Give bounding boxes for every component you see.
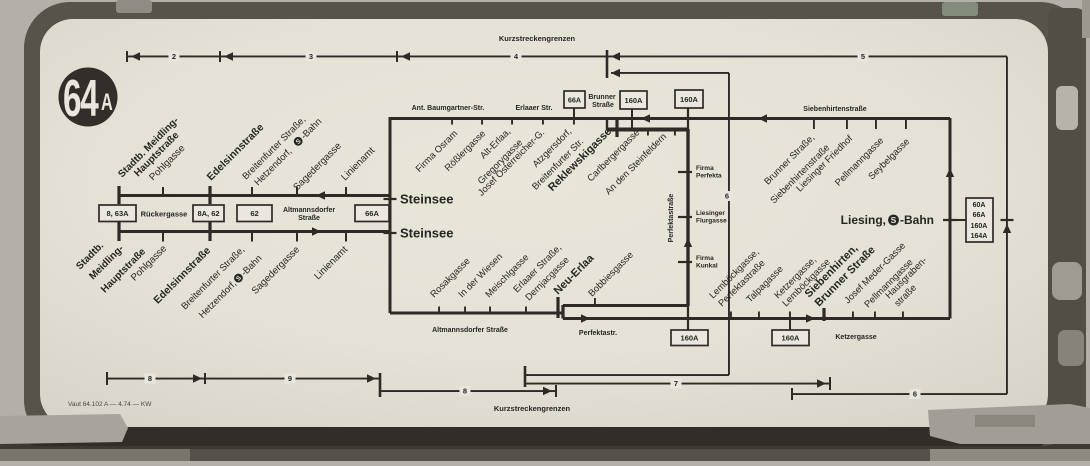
svg-text:Altmannsdorfer Straße: Altmannsdorfer Straße	[432, 327, 508, 334]
svg-text:Kunkal: Kunkal	[696, 263, 718, 270]
svg-text:6: 6	[913, 390, 917, 399]
svg-text:8, 63A: 8, 63A	[106, 209, 129, 218]
svg-text:164A: 164A	[971, 233, 988, 240]
svg-text:66A: 66A	[365, 209, 379, 218]
svg-text:Kurzstreckengrenzen: Kurzstreckengrenzen	[494, 404, 571, 413]
svg-text:160A: 160A	[625, 96, 644, 105]
svg-text:Siebenhirtenstraße: Siebenhirtenstraße	[803, 106, 867, 113]
svg-text:Erlaaer Str.: Erlaaer Str.	[516, 105, 553, 112]
svg-text:Kurzstreckengrenzen: Kurzstreckengrenzen	[499, 34, 576, 43]
svg-text:9: 9	[288, 374, 292, 383]
svg-text:6: 6	[725, 192, 729, 201]
svg-text:66A: 66A	[973, 212, 986, 219]
svg-text:8A, 62: 8A, 62	[197, 209, 219, 218]
svg-text:Flurgasse: Flurgasse	[696, 218, 727, 225]
svg-text:A: A	[101, 89, 113, 116]
svg-text:Ant. Baumgartner-Str.: Ant. Baumgartner-Str.	[412, 105, 485, 112]
svg-text:-Bahn: -Bahn	[900, 213, 934, 227]
svg-text:Steinsee: Steinsee	[400, 226, 453, 241]
svg-text:Straße: Straße	[298, 215, 320, 222]
svg-text:Ketzergasse: Ketzergasse	[835, 334, 876, 341]
svg-text:Steinsee: Steinsee	[400, 192, 453, 207]
svg-text:160A: 160A	[681, 334, 700, 343]
svg-text:8: 8	[148, 374, 152, 383]
svg-text:Rückergasse: Rückergasse	[141, 210, 188, 219]
svg-text:62: 62	[250, 209, 258, 218]
svg-text:Perfektastr.: Perfektastr.	[579, 330, 617, 337]
svg-text:Perfektastraße: Perfektastraße	[668, 194, 675, 243]
svg-text:S: S	[891, 215, 897, 225]
svg-text:7: 7	[674, 379, 678, 388]
svg-text:Brunner: Brunner	[588, 94, 616, 101]
svg-text:66A: 66A	[568, 95, 581, 104]
svg-text:8: 8	[463, 387, 467, 396]
svg-text:160A: 160A	[680, 95, 699, 104]
svg-text:Liesing,: Liesing,	[841, 213, 886, 227]
svg-text:160A: 160A	[971, 223, 988, 230]
svg-text:3: 3	[309, 52, 313, 61]
svg-text:Perfekta: Perfekta	[696, 173, 722, 180]
svg-text:60A: 60A	[973, 202, 986, 209]
svg-text:Straße: Straße	[592, 102, 614, 109]
svg-text:Liesinger: Liesinger	[696, 210, 725, 217]
svg-text:2: 2	[172, 52, 176, 61]
svg-text:Firma: Firma	[696, 165, 714, 172]
svg-text:160A: 160A	[782, 334, 801, 343]
svg-text:Altmannsdorfer: Altmannsdorfer	[283, 207, 335, 214]
svg-text:64: 64	[63, 70, 99, 128]
svg-text:5: 5	[861, 52, 865, 61]
svg-text:Firma: Firma	[696, 255, 714, 262]
svg-text:Vaut 64.102 A — 4.74 — KW: Vaut 64.102 A — 4.74 — KW	[68, 401, 152, 408]
